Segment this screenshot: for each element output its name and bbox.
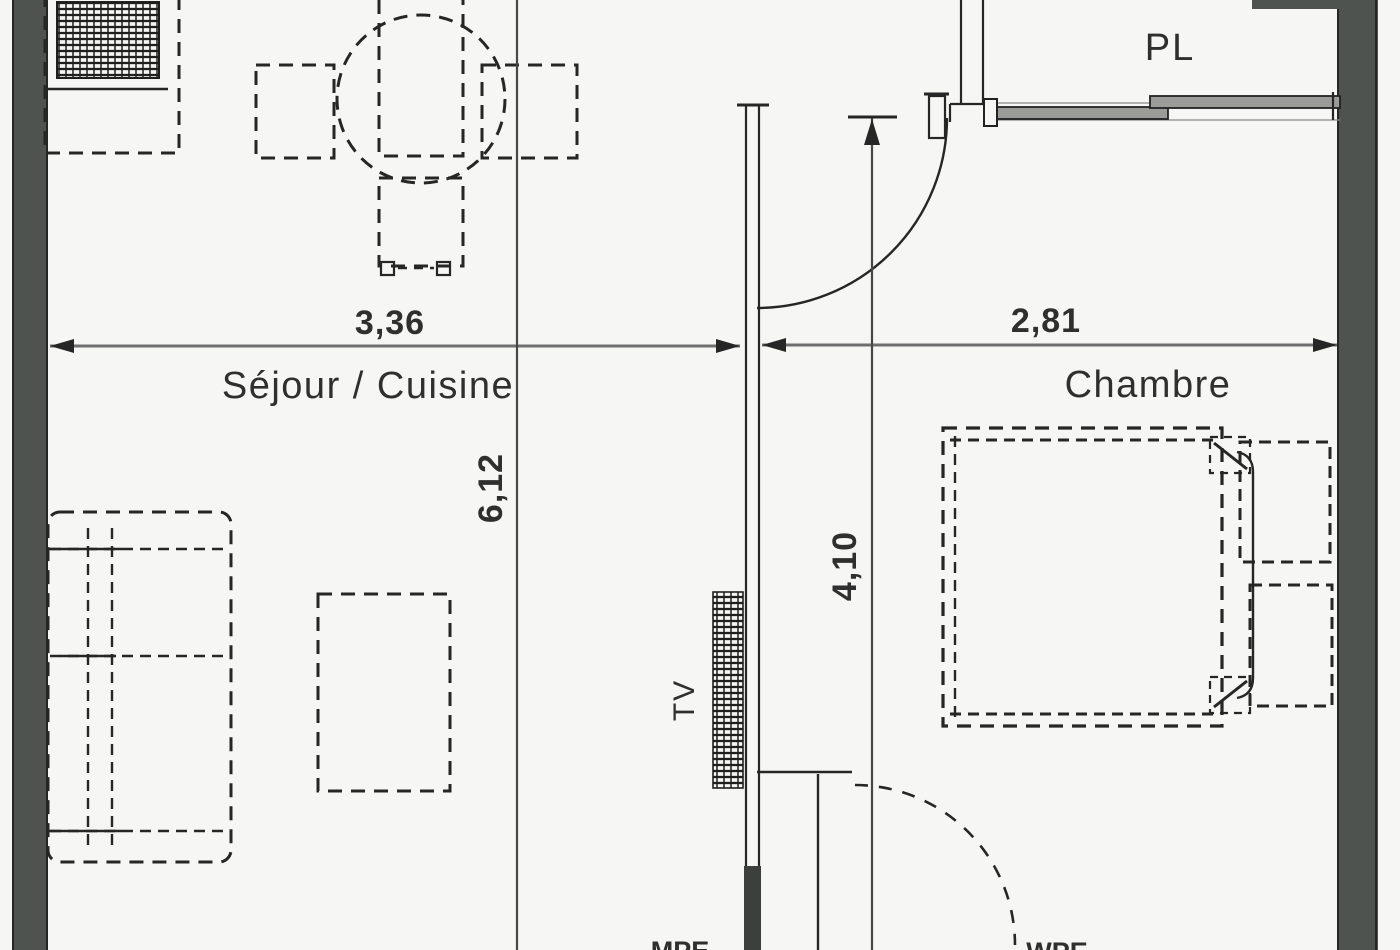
dining-chair-right — [482, 65, 577, 158]
dim-label-living-width: 3,36 — [355, 304, 425, 342]
entry-door-swing-arc — [757, 118, 947, 308]
room-label-bedroom: Chambre — [1065, 364, 1232, 406]
closet-sliding-doors — [984, 92, 1340, 126]
dim-line-bedroom-width — [762, 338, 1337, 352]
dim-label-living-length: 6,12 — [472, 453, 510, 523]
kitchen-unit — [45, 0, 179, 153]
clipped-label-bottom-left: MPE — [651, 936, 710, 950]
nightstand-bottom-icon — [1250, 585, 1332, 706]
sofa-icon — [48, 512, 231, 862]
partition-wall-footing — [744, 866, 761, 950]
left-wall — [12, 0, 48, 950]
floor-plan-svg: TV 3,36 2,81 6,12 — [0, 0, 1400, 950]
closet-label: PL — [1145, 27, 1195, 69]
entry-door-stop — [924, 94, 949, 138]
bedroom-door-swing-arc — [855, 785, 1015, 945]
sliding-door-end-cap — [984, 99, 997, 126]
right-wall — [1338, 0, 1378, 950]
dining-set — [256, 0, 577, 275]
bed-icon — [943, 428, 1222, 726]
clipped-label-bottom-right: WPE — [1026, 937, 1088, 950]
floor-plan-page: TV 3,36 2,81 6,12 — [0, 0, 1400, 950]
room-label-living-kitchen: Séjour / Cuisine — [222, 365, 514, 407]
coffee-table-icon — [318, 594, 450, 791]
tv-label: TV — [668, 679, 701, 721]
dining-chair-bottom — [379, 178, 463, 266]
kitchen-appliance-hatch — [57, 2, 159, 78]
dining-chair-top — [379, 0, 463, 156]
dining-table-icon — [337, 15, 505, 183]
dining-chair-left — [256, 65, 334, 158]
bedroom-door — [757, 772, 1015, 950]
dim-label-bedroom-length: 4,10 — [826, 531, 864, 601]
dim-label-bedroom-width: 2,81 — [1011, 302, 1081, 340]
sliding-door-panel-1 — [988, 107, 1168, 119]
tv-unit-icon — [713, 592, 743, 788]
top-right-wall — [1252, 0, 1342, 9]
sliding-door-panel-2 — [1150, 96, 1340, 108]
partition-wall — [737, 104, 769, 950]
